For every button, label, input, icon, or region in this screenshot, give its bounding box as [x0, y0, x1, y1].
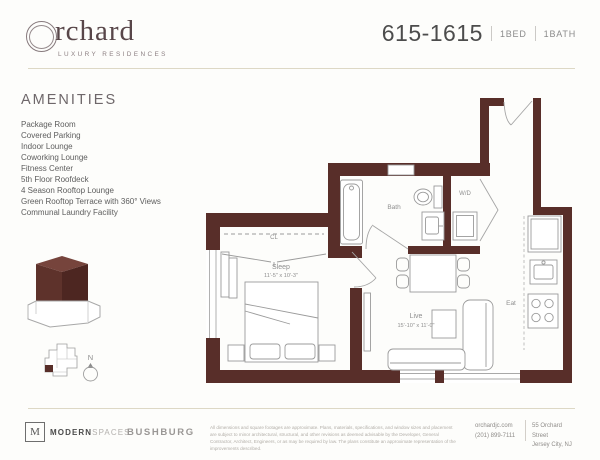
stove — [528, 294, 558, 328]
compass: N — [84, 353, 98, 381]
modernspaces-wordmark: MODERNSPACES — [50, 428, 131, 437]
header-rule — [28, 68, 575, 69]
unit-number: 615-1615 — [382, 20, 483, 47]
sofa — [463, 300, 493, 370]
phone: (201) 899-7111 — [475, 432, 515, 442]
unit-location-marker — [45, 365, 53, 372]
toilet-bowl — [414, 189, 432, 205]
amenities-list: AMENITIES Package Room Covered Parking I… — [21, 92, 196, 218]
wd-label: W/D — [459, 191, 471, 197]
amenity-item: 5th Floor Roofdeck — [21, 174, 196, 185]
amenity-item: Indoor Lounge — [21, 141, 196, 152]
footer-rule — [28, 408, 575, 409]
brand-logo: rchard LUXURY RESIDENCES — [26, 14, 206, 64]
sofa-chaise — [388, 349, 465, 370]
unit-info: 615-1615 1BED 1BATH — [382, 20, 576, 47]
nightstand — [319, 345, 335, 361]
building-axon-icon — [28, 256, 100, 327]
website: orchardjc.com — [475, 422, 515, 432]
legal-disclaimer: All dimensions and square footages are a… — [210, 424, 460, 452]
amenity-item: Package Room — [21, 119, 196, 130]
bath-door-leaf — [372, 225, 408, 249]
bath-niche — [388, 165, 414, 175]
amenity-item: Coworking Lounge — [21, 152, 196, 163]
amenity-item: Covered Parking — [21, 130, 196, 141]
building-key-figure: N — [16, 244, 120, 389]
window-mullion — [435, 370, 444, 383]
orchard-o-ring-icon — [26, 21, 57, 52]
floorplan-flyer: rchard LUXURY RESIDENCES 615-1615 1BED 1… — [0, 0, 600, 460]
eat-label: Eat — [506, 300, 516, 307]
chair — [458, 275, 470, 288]
amenity-item: 4 Season Rooftop Lounge — [21, 185, 196, 196]
wd-bifold-doors — [480, 179, 498, 241]
address-block: 55 Orchard Street Jersey City, NJ — [532, 422, 575, 451]
bath-door-arc — [366, 226, 372, 249]
compass-n-label: N — [88, 353, 93, 362]
entry-door-leaf — [511, 101, 532, 125]
brand-wordmark: rchard — [55, 15, 135, 47]
key-plan-icon — [45, 344, 77, 376]
nightstand — [228, 345, 244, 361]
amenity-item: Fitness Center — [21, 163, 196, 174]
fridge — [528, 216, 561, 252]
bedroom-door-leaf — [352, 252, 376, 278]
amenity-item: Green Rooftop Terrace with 360° Views — [21, 196, 196, 207]
amenity-item: Communal Laundry Facility — [21, 207, 196, 218]
sleep-label: Sleep — [272, 264, 290, 271]
chair — [397, 258, 409, 271]
modernspaces-mark: M — [30, 426, 40, 438]
amenities-title: AMENITIES — [21, 92, 196, 108]
dresser — [221, 252, 229, 297]
footer: M MODERNSPACES BUSHBURG All dimensions a… — [25, 418, 575, 456]
footer-divider — [525, 420, 526, 441]
sleep-dims: 11'-5" x 10'-3" — [264, 273, 298, 279]
dining-table — [410, 255, 456, 292]
bedroom-door-arc — [354, 278, 376, 287]
closet-label: CL — [270, 235, 278, 241]
divider — [491, 26, 492, 41]
toilet-tank — [434, 186, 442, 208]
modernspaces-logo-icon: M — [25, 422, 45, 442]
live-label: Live — [410, 313, 423, 320]
bushburg-wordmark: BUSHBURG — [127, 427, 195, 438]
chair — [397, 275, 409, 288]
bath-count: 1BATH — [544, 29, 576, 39]
chair — [458, 258, 470, 271]
divider — [535, 26, 536, 41]
address-city: Jersey City, NJ — [532, 441, 575, 451]
brand-tagline: LUXURY RESIDENCES — [58, 51, 168, 58]
live-dims: 15'-10" x 11'-0" — [397, 323, 434, 329]
contact-block: orchardjc.com (201) 899-7111 — [475, 422, 515, 441]
bed-count: 1BED — [500, 29, 527, 39]
dresser — [229, 258, 237, 298]
bath-label: Bath — [387, 204, 401, 211]
address-street: 55 Orchard Street — [532, 422, 575, 441]
floorplan-drawing: CL Sleep 11'-5" x 10'-3" Bath W/D Eat Li… — [192, 88, 582, 403]
tv-console — [364, 293, 371, 351]
entry-door-arc — [504, 102, 511, 125]
coffee-table — [432, 310, 456, 338]
